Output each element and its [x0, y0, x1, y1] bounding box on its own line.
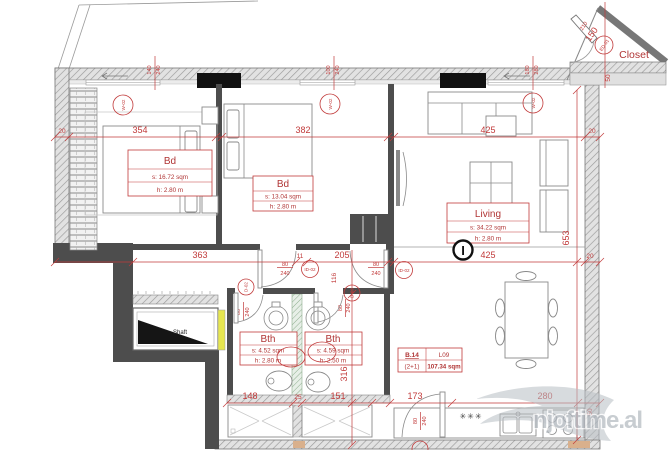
room-label-bth1: Bth s: 4.52 sqm h: 2.80 m	[240, 332, 297, 365]
bottom-wall-block-2	[568, 441, 590, 448]
window-tag-text: W-02	[328, 98, 333, 109]
win-dim: 180	[525, 65, 531, 74]
window-tag-text: W-02	[121, 99, 126, 110]
toilet	[266, 371, 292, 391]
room-label-bd1: Bd s: 16.72 sqm h: 2.80 m	[128, 150, 212, 196]
dim-living-width-2: 425	[480, 250, 495, 260]
bathroom-2: Bth s: 4.59 sqm h: 2.50 m	[305, 293, 362, 392]
nightstand	[202, 196, 218, 213]
trays	[228, 405, 372, 437]
door-width: 80	[282, 262, 288, 268]
dim-bd1-width: 354	[132, 125, 147, 135]
bottom-wall	[215, 440, 600, 449]
nightstand	[202, 107, 218, 124]
shaft: Shaft	[133, 291, 225, 350]
bd2-area: s: 13.04 sqm	[265, 194, 301, 201]
win-dim: 280	[534, 65, 540, 74]
door-tag-text: ID-02	[398, 268, 410, 273]
bth2-area: s: 4.59 sqm	[317, 348, 350, 355]
door-tag-text: ID-02	[304, 267, 316, 272]
column-glyph: I	[461, 243, 465, 258]
bd2-height: h: 2.80 m	[270, 204, 296, 211]
bth2-name: Bth	[325, 334, 340, 345]
dim-hall-b: 116	[331, 272, 338, 283]
door-height: 240	[245, 307, 251, 316]
shaft-label: Shaft	[173, 330, 187, 336]
dining-table	[496, 272, 558, 369]
window-tag-text: W-02	[531, 97, 536, 108]
window-tag-2: W-02	[320, 94, 340, 114]
dim-tray1: 148	[242, 391, 257, 401]
unit-type: (2+1)	[405, 364, 420, 371]
dim-wall-left: 20	[58, 128, 66, 135]
dim-bd2-width: 382	[295, 125, 310, 135]
dim-hall-width: 363	[192, 250, 207, 260]
win-dim: 140	[147, 65, 153, 74]
watermark-text: njoftime.al	[533, 407, 642, 434]
dim-height-right: 653	[561, 230, 571, 245]
floor-plan-page: Shaft Bd s: 16.72 sqm	[0, 0, 670, 450]
sink	[264, 302, 288, 330]
dim-tray-gap: 25	[294, 394, 302, 401]
shaft-yellow-strip	[218, 310, 225, 350]
door-height: 240	[280, 271, 289, 277]
dim-tray2: 151	[330, 391, 345, 401]
room-label-bd2: Bd s: 13.04 sqm h: 2.80 m	[253, 176, 313, 211]
floor-plan-drawing: Shaft Bd s: 16.72 sqm	[0, 0, 670, 450]
bd1-name: Bd	[164, 156, 176, 167]
living-height: h: 2.80 m	[475, 236, 501, 243]
closet-label: Closet	[619, 49, 649, 61]
door-size-note-1: 80 240 ID-02	[277, 261, 319, 278]
dim-wall-right-2: 20	[586, 253, 594, 260]
door-width: 80	[413, 418, 419, 424]
door-bd2	[350, 250, 388, 288]
unit-id: B.14	[405, 352, 419, 359]
tv	[396, 150, 407, 206]
coffee-table	[470, 162, 512, 204]
entry-door-tag: ED-01	[595, 36, 613, 54]
bd1-area: s: 16.72 sqm	[152, 174, 188, 181]
door-height: 240	[371, 271, 380, 277]
door-bd1	[258, 250, 296, 288]
bedroom-2: Bd s: 13.04 sqm h: 2.80 m W-02	[224, 94, 388, 244]
living-name: Living	[475, 209, 501, 220]
armchair	[540, 190, 568, 232]
dim-hall-a: 205	[334, 250, 349, 260]
closet-structure	[567, 8, 666, 85]
column-block-2	[440, 73, 486, 88]
column-symbol: I	[454, 241, 473, 260]
bd1-height: h: 2.80 m	[157, 187, 183, 194]
wardrobe-2	[350, 214, 388, 244]
door-tag-d02-a: D-02 80 240	[236, 279, 254, 320]
top-wall	[55, 68, 570, 88]
door-width: 80	[373, 262, 379, 268]
win-dim: 100	[326, 65, 332, 74]
win-dim: 240	[156, 65, 162, 74]
unit-area: 107.34 sqm	[427, 364, 461, 371]
armchair	[540, 140, 568, 186]
toilet	[306, 372, 330, 392]
dim-door-zone: 173	[407, 391, 422, 401]
dim-living-width: 425	[480, 125, 495, 135]
bottom-wall-block-1	[293, 441, 305, 448]
bth1-name: Bth	[260, 334, 275, 345]
unit-label: B.14 L09 (2+1) 107.34 sqm	[398, 348, 462, 372]
bath2-door	[314, 293, 343, 323]
window-bd2	[300, 80, 355, 85]
living-area: s: 34.22 sqm	[470, 225, 506, 232]
closet-wall-dim: 50	[605, 74, 612, 82]
living-room: Living s: 34.22 sqm h: 2.80 m W-02 I	[396, 92, 568, 260]
vent-symbol: ✳✳✳	[459, 412, 482, 421]
door-tag-text: D-02	[244, 282, 249, 292]
room-label-living: Living s: 34.22 sqm h: 2.80 m	[447, 203, 529, 243]
win-dim: 240	[335, 65, 341, 74]
dim-wall-mid: 11	[297, 253, 304, 260]
bd2-name: Bd	[277, 179, 289, 190]
dim-bath-height: 316	[339, 366, 349, 381]
unit-level: L09	[439, 352, 450, 359]
door-tag-text: ED-01	[598, 38, 610, 52]
door-height: 240	[346, 303, 352, 312]
bedroom-1: Bd s: 16.72 sqm h: 2.80 m W-02	[70, 88, 218, 250]
door-height: 240	[422, 416, 428, 425]
left-wall	[55, 68, 69, 253]
bed-2	[224, 104, 312, 178]
dim-wall-right: 20	[588, 128, 596, 135]
roof-overhang-outline	[57, 1, 258, 72]
